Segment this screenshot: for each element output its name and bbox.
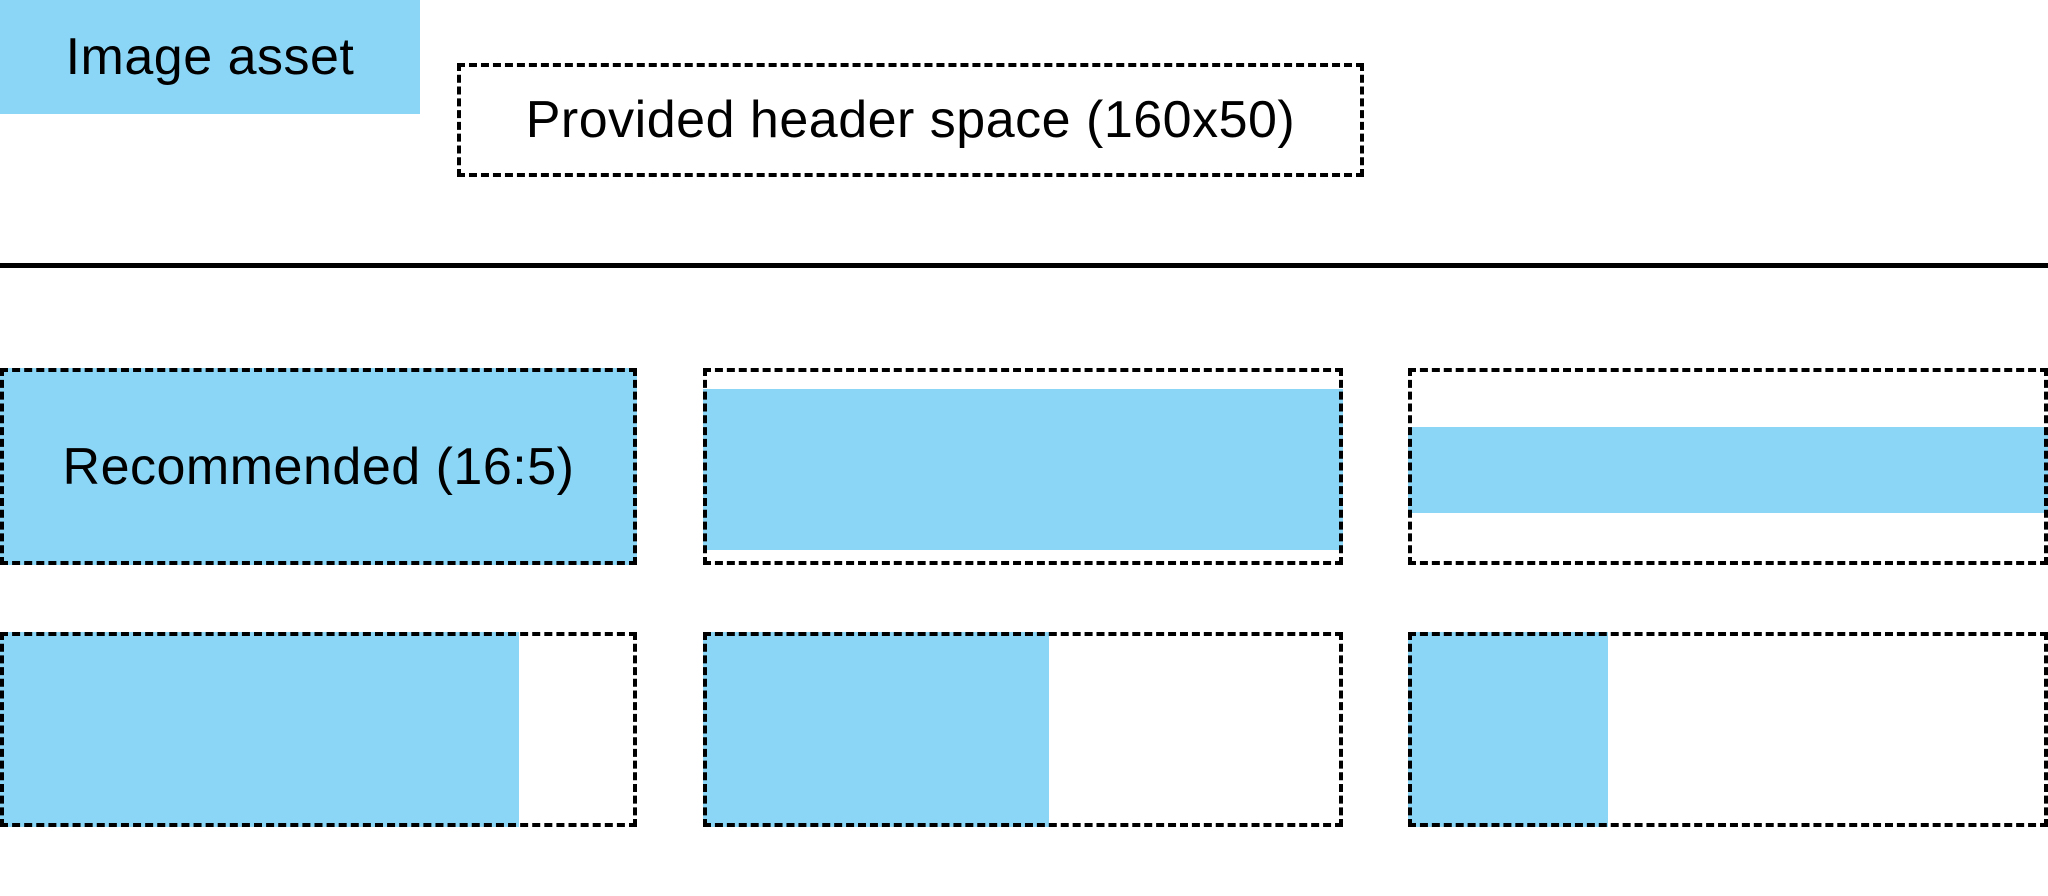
section-divider bbox=[0, 263, 2048, 268]
header-space-outline bbox=[703, 632, 1343, 827]
example-tile-full-width-thin-strip bbox=[1408, 368, 2048, 565]
header-space-outline bbox=[1408, 632, 2048, 827]
example-tile-partial-width-54 bbox=[703, 632, 1343, 827]
asset-sizing-diagram: Image asset Provided header space (160x5… bbox=[0, 0, 2048, 896]
example-tile-full-width-reduced-height bbox=[703, 368, 1343, 565]
recommended-label: Recommended (16:5) bbox=[63, 437, 575, 497]
legend-header-space-label: Provided header space (160x50) bbox=[526, 90, 1295, 150]
legend-image-asset-label: Image asset bbox=[66, 27, 355, 87]
header-space-outline bbox=[0, 632, 637, 827]
recommended-label-layer: Recommended (16:5) bbox=[0, 368, 637, 565]
legend-header-space-box: Provided header space (160x50) bbox=[457, 63, 1364, 177]
example-tile-partial-width-82 bbox=[0, 632, 637, 827]
header-space-outline bbox=[703, 368, 1343, 565]
example-tile-recommended: Recommended (16:5) bbox=[0, 368, 637, 565]
legend-image-asset-swatch: Image asset bbox=[0, 0, 420, 114]
example-tile-partial-width-31 bbox=[1408, 632, 2048, 827]
header-space-outline bbox=[1408, 368, 2048, 565]
